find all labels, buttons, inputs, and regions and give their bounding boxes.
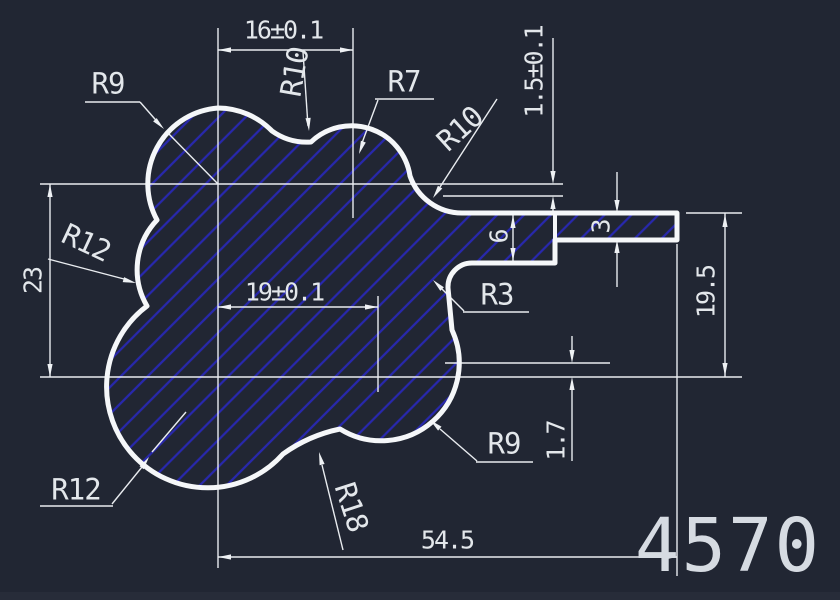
dim-19-label[interactable]: 19±0.1 [245,280,323,305]
dim-54-5-label[interactable]: 54.5 [421,528,473,553]
dim-1-5-label[interactable]: 1.5±0.1 [522,26,547,117]
radius-r3-label[interactable]: R3 [481,281,514,310]
dim-19-5-label[interactable]: 19.5 [694,266,719,318]
radius-r12-bottom-label[interactable]: R12 [51,476,100,505]
radius-r7-label[interactable]: R7 [388,68,421,97]
dim-16-label[interactable]: 16±0.1 [244,18,322,43]
dim-1-7-label[interactable]: 1.7 [544,421,569,460]
dim-3-label[interactable]: 3 [589,220,614,233]
dim-23-label[interactable]: 23 [21,268,46,294]
canvas-bottom-edge [0,592,840,600]
dim-6-label[interactable]: 6 [487,230,512,243]
cad-canvas: 16±0.1 R10 R9 R7 R10 1.5±0.1 R12 23 19±0… [0,0,840,600]
radius-r9-bottom-label[interactable]: R9 [488,430,521,459]
part-number-text[interactable]: 4570 [635,509,821,583]
radius-r10-top-label[interactable]: R10 [276,45,313,99]
radius-r9-top-label[interactable]: R9 [92,70,125,99]
